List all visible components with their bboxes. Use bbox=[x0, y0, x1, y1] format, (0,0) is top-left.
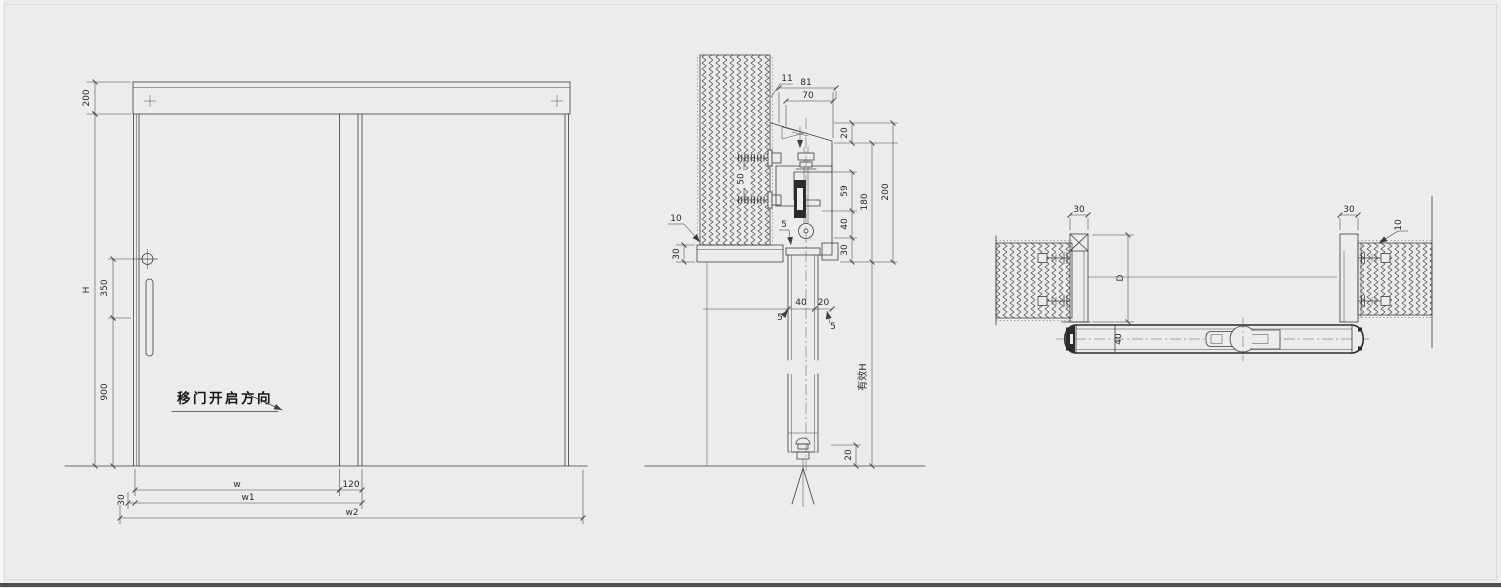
horizontal-section-view: 30 D 40 bbox=[996, 196, 1432, 361]
right-wall-hatch bbox=[1358, 243, 1432, 315]
dim-floor-guide-20: 20 bbox=[844, 449, 854, 461]
elevation-view: 移门开启方向 200 H 350 900 w 120 30 w1 w2 bbox=[65, 82, 587, 524]
ceiling-return bbox=[822, 243, 838, 260]
dim-handle-height: 900 bbox=[100, 383, 110, 400]
floor-guide bbox=[792, 438, 814, 507]
dim-chain-59: 59 bbox=[840, 185, 850, 197]
drawing-sheet: 移门开启方向 200 H 350 900 w 120 30 w1 w2 bbox=[0, 0, 1501, 588]
housing-bracket bbox=[782, 127, 808, 139]
dim-clearance-5-right: 5 bbox=[830, 322, 836, 332]
dim-200: 200 bbox=[881, 183, 891, 200]
dim-gap-20: 20 bbox=[818, 298, 830, 308]
dim-left-jamb-30: 30 bbox=[1073, 205, 1085, 215]
dim-clearance-5-wall: 5 bbox=[781, 220, 787, 230]
dim-chain-20: 20 bbox=[840, 127, 850, 139]
dim-wall-edge-10: 10 bbox=[670, 214, 682, 224]
dim-pocket-depth-D: D bbox=[1116, 274, 1126, 281]
dim-handle-offset: 350 bbox=[100, 279, 110, 296]
fixing-cross-marks bbox=[144, 95, 563, 107]
dim-top-11: 11 bbox=[781, 74, 792, 84]
dim-top-70: 70 bbox=[802, 91, 814, 101]
dim-effective-height: 有效H bbox=[856, 363, 869, 391]
dim-overlap-120: 120 bbox=[342, 480, 359, 490]
left-wall-hatch bbox=[996, 243, 1072, 318]
dim-width-w: w bbox=[233, 480, 240, 490]
cad-drawing: 移门开启方向 200 H 350 900 w 120 30 w1 w2 bbox=[0, 0, 1501, 588]
dim-right-jamb-30: 30 bbox=[1343, 205, 1355, 215]
vertical-section-view: 50 10 30 81 bbox=[645, 55, 925, 507]
lintel-beam bbox=[697, 245, 783, 262]
dim-180: 180 bbox=[860, 193, 870, 210]
door-hanger-plate bbox=[786, 248, 820, 255]
dim-leaf-40: 40 bbox=[1114, 333, 1124, 345]
dim-side-overlap-30: 30 bbox=[117, 494, 127, 506]
lock-assembly bbox=[1206, 317, 1280, 361]
jamb-cross-box bbox=[1070, 234, 1088, 251]
left-jamb bbox=[1070, 234, 1088, 322]
dim-beam-30: 30 bbox=[672, 248, 682, 260]
dim-panel-40: 40 bbox=[795, 298, 807, 308]
right-jamb bbox=[1340, 234, 1358, 322]
dim-chain-30: 30 bbox=[840, 244, 850, 256]
dim-screw-spacing-50: 50 bbox=[737, 173, 747, 185]
door-panel-section bbox=[788, 255, 818, 452]
dim-top-81: 81 bbox=[800, 78, 811, 88]
dim-chain-40: 40 bbox=[840, 218, 850, 230]
open-direction-label: 移门开启方向 bbox=[177, 390, 273, 407]
door-handle bbox=[146, 279, 153, 356]
wall-hatch bbox=[700, 55, 770, 245]
dim-door-height: H bbox=[82, 287, 92, 294]
track-cover bbox=[133, 82, 570, 114]
dim-right-wall-10: 10 bbox=[1394, 219, 1404, 231]
dim-width-w1: w1 bbox=[241, 493, 254, 503]
door-panels bbox=[134, 114, 569, 466]
dim-clearance-5-left: 5 bbox=[777, 313, 783, 323]
dim-width-w2: w2 bbox=[345, 508, 358, 518]
dim-track-height: 200 bbox=[82, 89, 92, 106]
